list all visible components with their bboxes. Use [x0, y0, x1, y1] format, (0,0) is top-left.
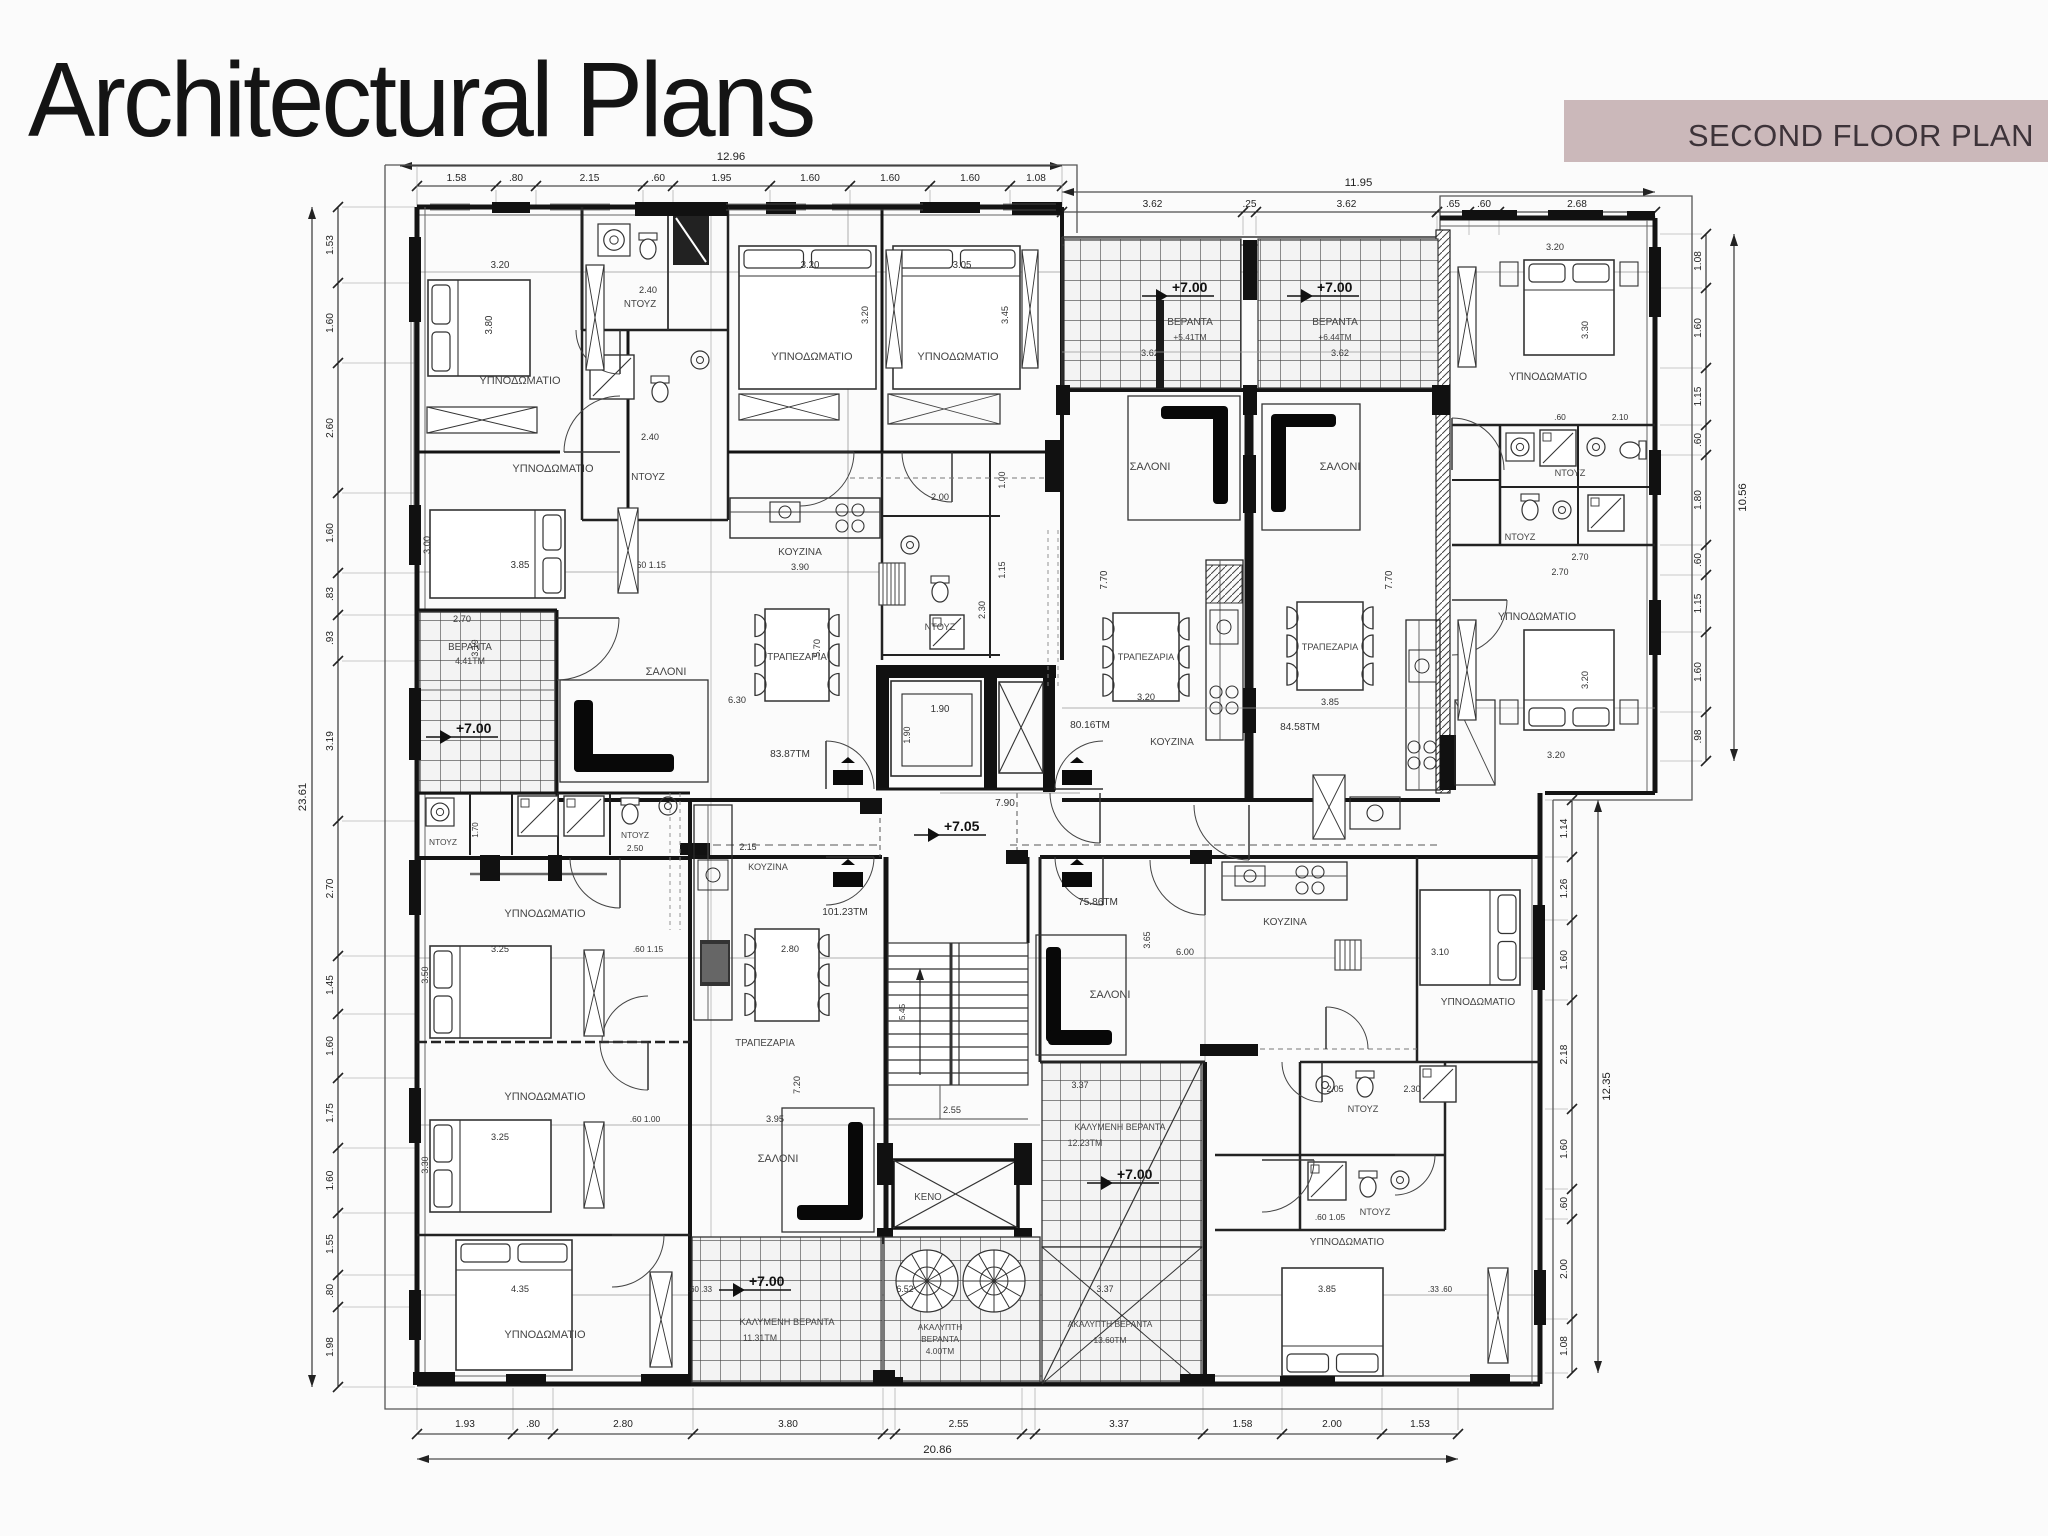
svg-text:ΚΟΥΖΙΝΑ: ΚΟΥΖΙΝΑ — [778, 547, 822, 558]
svg-text:ΤΡΑΠΕΖΑΡΙΑ: ΤΡΑΠΕΖΑΡΙΑ — [735, 1038, 795, 1049]
svg-text:20.86: 20.86 — [923, 1444, 952, 1456]
svg-text:2.15: 2.15 — [739, 842, 756, 852]
svg-text:1.00: 1.00 — [997, 471, 1007, 488]
svg-text:3.05: 3.05 — [953, 260, 972, 271]
svg-text:2.55: 2.55 — [943, 1105, 961, 1115]
svg-text:23.61: 23.61 — [297, 783, 309, 812]
svg-text:.80: .80 — [526, 1419, 540, 1430]
svg-text:.60 .33: .60 .33 — [688, 1285, 713, 1294]
svg-text:3.65: 3.65 — [1142, 931, 1152, 948]
svg-text:ΣΑΛΟΝΙ: ΣΑΛΟΝΙ — [646, 666, 687, 678]
svg-text:3.00: 3.00 — [422, 536, 432, 554]
svg-text:1.93: 1.93 — [455, 1419, 475, 1430]
svg-text:ΒΕΡΑΝΤΑ: ΒΕΡΑΝΤΑ — [921, 1334, 959, 1344]
svg-text:1.60: 1.60 — [1559, 950, 1570, 970]
svg-text:.98: .98 — [1693, 729, 1704, 743]
svg-text:7.70: 7.70 — [1099, 570, 1110, 589]
svg-text:1.15: 1.15 — [1693, 386, 1704, 406]
svg-text:1.15: 1.15 — [1693, 593, 1704, 613]
svg-text:1.15: 1.15 — [997, 561, 1007, 578]
svg-text:.60: .60 — [1693, 433, 1704, 447]
svg-text:3.45: 3.45 — [1000, 306, 1010, 324]
svg-text:ΤΡΑΠΕΖΑΡΙΑ: ΤΡΑΠΕΖΑΡΙΑ — [1302, 642, 1359, 652]
svg-text:.60: .60 — [651, 173, 665, 184]
svg-text:4.00TM: 4.00TM — [926, 1346, 954, 1356]
svg-text:3.25: 3.25 — [491, 1132, 509, 1142]
svg-text:1.60: 1.60 — [960, 173, 980, 184]
svg-text:ΝΤΟΥΖ: ΝΤΟΥΖ — [624, 299, 656, 310]
svg-text:.80: .80 — [325, 1284, 336, 1298]
svg-text:ΒΕΡΑΝΤΑ: ΒΕΡΑΝΤΑ — [1312, 317, 1358, 328]
svg-text:+7.00: +7.00 — [1172, 279, 1208, 295]
svg-text:1.70: 1.70 — [471, 822, 480, 838]
svg-text:ΝΤΟΥΖ: ΝΤΟΥΖ — [631, 472, 665, 483]
svg-text:1.45: 1.45 — [325, 975, 336, 995]
svg-text:2.50: 2.50 — [627, 843, 644, 853]
svg-text:ΥΠΝΟΔΩΜΑΤΙΟ: ΥΠΝΟΔΩΜΑΤΙΟ — [1509, 371, 1587, 383]
svg-text:ΝΤΟΥΖ: ΝΤΟΥΖ — [1555, 468, 1586, 478]
svg-text:2.70: 2.70 — [1551, 567, 1568, 577]
svg-text:.33 .60: .33 .60 — [1428, 1285, 1453, 1294]
svg-text:.60: .60 — [1559, 1197, 1570, 1211]
svg-text:ΒΕΡΑΝΤΑ: ΒΕΡΑΝΤΑ — [1167, 317, 1213, 328]
svg-text:3.90: 3.90 — [791, 562, 809, 572]
svg-text:10.56: 10.56 — [1737, 483, 1749, 512]
svg-text:3.19: 3.19 — [470, 639, 480, 656]
svg-text:ΑΚΑΛΥΠΤΗ ΒΕΡΑΝΤΑ: ΑΚΑΛΥΠΤΗ ΒΕΡΑΝΤΑ — [1068, 1319, 1153, 1329]
svg-text:+5.41TM: +5.41TM — [1173, 332, 1206, 342]
svg-text:3.95: 3.95 — [766, 1114, 784, 1124]
svg-text:1.60: 1.60 — [325, 313, 336, 333]
svg-text:.60: .60 — [1693, 553, 1704, 567]
svg-text:7.70: 7.70 — [1384, 570, 1395, 589]
svg-text:80.16TM: 80.16TM — [1070, 720, 1110, 731]
svg-text:.60 1.15: .60 1.15 — [633, 944, 664, 954]
svg-text:ΝΤΟΥΖ: ΝΤΟΥΖ — [1348, 1104, 1379, 1114]
svg-text:ΥΠΝΟΔΩΜΑΤΙΟ: ΥΠΝΟΔΩΜΑΤΙΟ — [1441, 997, 1516, 1008]
svg-text:ΥΠΝΟΔΩΜΑΤΙΟ: ΥΠΝΟΔΩΜΑΤΙΟ — [771, 351, 853, 363]
svg-text:ΥΠΝΟΔΩΜΑΤΙΟ: ΥΠΝΟΔΩΜΑΤΙΟ — [504, 908, 586, 920]
svg-text:3.20: 3.20 — [1547, 750, 1565, 760]
svg-text:1.60: 1.60 — [880, 173, 900, 184]
svg-text:.25: .25 — [1242, 199, 1256, 210]
svg-text:13.60TM: 13.60TM — [1093, 1335, 1126, 1345]
svg-text:.60: .60 — [1554, 412, 1566, 422]
svg-text:3.62: 3.62 — [1143, 199, 1163, 210]
svg-text:2.30: 2.30 — [1403, 1084, 1420, 1094]
svg-text:1.53: 1.53 — [1410, 1419, 1430, 1430]
svg-text:5.45: 5.45 — [897, 1004, 907, 1021]
svg-text:3.62: 3.62 — [1331, 348, 1349, 358]
svg-text:3.25: 3.25 — [491, 944, 509, 954]
svg-text:.83: .83 — [325, 587, 336, 601]
svg-text:ΝΤΟΥΖ: ΝΤΟΥΖ — [621, 830, 649, 840]
svg-text:+7.05: +7.05 — [944, 818, 980, 834]
svg-text:75.86TM: 75.86TM — [1078, 897, 1118, 908]
svg-text:1.60: 1.60 — [1693, 318, 1704, 338]
svg-text:3.37: 3.37 — [1071, 1080, 1088, 1090]
svg-text:+7.00: +7.00 — [1117, 1166, 1153, 1182]
svg-text:3.30: 3.30 — [1580, 321, 1590, 339]
svg-text:84.58TM: 84.58TM — [1280, 722, 1320, 733]
svg-text:6.00: 6.00 — [1176, 947, 1194, 957]
svg-text:83.87TM: 83.87TM — [770, 749, 810, 760]
svg-text:2.00: 2.00 — [1559, 1259, 1570, 1279]
svg-text:2.10: 2.10 — [1612, 412, 1629, 422]
svg-text:1.26: 1.26 — [1559, 878, 1570, 898]
svg-text:1.08: 1.08 — [1693, 251, 1704, 271]
svg-text:3.30: 3.30 — [420, 1156, 430, 1173]
svg-text:ΚΑΛΥΜΕΝΗ ΒΕΡΑΝΤΑ: ΚΑΛΥΜΕΝΗ ΒΕΡΑΝΤΑ — [1075, 1122, 1166, 1132]
svg-text:1.53: 1.53 — [325, 235, 336, 255]
svg-text:3.20: 3.20 — [1546, 242, 1564, 252]
svg-text:.60: .60 — [1477, 199, 1491, 210]
svg-text:2.40: 2.40 — [639, 285, 657, 295]
svg-text:.93: .93 — [325, 631, 336, 645]
svg-text:3.85: 3.85 — [1318, 1284, 1336, 1294]
svg-text:ΥΠΝΟΔΩΜΑΤΙΟ: ΥΠΝΟΔΩΜΑΤΙΟ — [1498, 611, 1576, 623]
svg-text:3.10: 3.10 — [1431, 947, 1449, 957]
svg-text:.65: .65 — [1446, 199, 1460, 210]
svg-text:1.90: 1.90 — [902, 726, 912, 743]
svg-text:6.30: 6.30 — [728, 695, 746, 705]
svg-text:2.18: 2.18 — [1559, 1044, 1570, 1064]
svg-text:3.80: 3.80 — [484, 315, 495, 334]
svg-text:1.80: 1.80 — [1693, 490, 1704, 510]
svg-text:4.35: 4.35 — [511, 1284, 529, 1294]
svg-text:7.20: 7.20 — [792, 1076, 802, 1094]
svg-text:1.55: 1.55 — [325, 1234, 336, 1254]
svg-text:1.60: 1.60 — [1559, 1139, 1570, 1159]
svg-text:1.98: 1.98 — [325, 1337, 336, 1357]
svg-text:1.58: 1.58 — [447, 173, 467, 184]
svg-text:1.58: 1.58 — [1233, 1419, 1253, 1430]
svg-text:1.60: 1.60 — [325, 1170, 336, 1190]
svg-text:ΝΤΟΥΖ: ΝΤΟΥΖ — [429, 837, 457, 847]
svg-text:ΣΑΛΟΝΙ: ΣΑΛΟΝΙ — [1090, 989, 1131, 1001]
svg-text:2.15: 2.15 — [580, 173, 600, 184]
svg-text:2.70: 2.70 — [1571, 552, 1588, 562]
svg-text:ΣΑΛΟΝΙ: ΣΑΛΟΝΙ — [1320, 461, 1361, 473]
svg-text:12.35: 12.35 — [1601, 1072, 1613, 1101]
svg-text:ΣΑΛΟΝΙ: ΣΑΛΟΝΙ — [758, 1153, 799, 1165]
svg-text:3.19: 3.19 — [325, 731, 336, 751]
svg-text:3.50: 3.50 — [420, 966, 430, 983]
svg-text:1.60: 1.60 — [325, 523, 336, 543]
svg-text:3.85: 3.85 — [1321, 697, 1339, 707]
svg-text:2.68: 2.68 — [1567, 199, 1587, 210]
svg-text:1.75: 1.75 — [325, 1103, 336, 1123]
svg-text:+7.00: +7.00 — [456, 720, 492, 736]
svg-text:1.14: 1.14 — [1559, 818, 1570, 838]
svg-text:2.70: 2.70 — [453, 614, 471, 624]
svg-text:3.20: 3.20 — [491, 260, 510, 271]
svg-text:3.20: 3.20 — [860, 306, 870, 324]
svg-text:2.05: 2.05 — [1326, 1084, 1343, 1094]
svg-text:1.60: 1.60 — [800, 173, 820, 184]
svg-text:1.08: 1.08 — [1026, 173, 1046, 184]
svg-text:ΥΠΝΟΔΩΜΑΤΙΟ: ΥΠΝΟΔΩΜΑΤΙΟ — [917, 351, 999, 363]
svg-text:ΤΡΑΠΕΖΑΡΙΑ: ΤΡΑΠΕΖΑΡΙΑ — [1118, 652, 1175, 662]
svg-text:12.96: 12.96 — [717, 151, 746, 163]
svg-text:3.80: 3.80 — [778, 1419, 798, 1430]
svg-text:ΚΟΥΖΙΝΑ: ΚΟΥΖΙΝΑ — [1263, 917, 1307, 928]
svg-text:+7.00: +7.00 — [1317, 279, 1353, 295]
svg-text:2.80: 2.80 — [613, 1419, 633, 1430]
svg-text:3.20: 3.20 — [1137, 692, 1155, 702]
svg-text:.80: .80 — [509, 173, 523, 184]
svg-text:2.55: 2.55 — [949, 1419, 969, 1430]
svg-text:101.23TM: 101.23TM — [822, 907, 867, 918]
svg-text:2.80: 2.80 — [781, 944, 799, 954]
svg-text:2.30: 2.30 — [977, 601, 987, 619]
svg-text:ΥΠΝΟΔΩΜΑΤΙΟ: ΥΠΝΟΔΩΜΑΤΙΟ — [479, 375, 561, 387]
svg-text:6.52: 6.52 — [896, 1284, 913, 1294]
svg-text:ΝΤΟΥΖ: ΝΤΟΥΖ — [925, 622, 956, 632]
svg-text:3.20: 3.20 — [801, 260, 820, 271]
svg-text:11.31TM: 11.31TM — [743, 1333, 777, 1343]
svg-text:1.90: 1.90 — [931, 704, 950, 715]
svg-text:3.62: 3.62 — [1337, 199, 1357, 210]
svg-text:ΥΠΝΟΔΩΜΑΤΙΟ: ΥΠΝΟΔΩΜΑΤΙΟ — [1310, 1237, 1385, 1248]
svg-text:.60 1.00: .60 1.00 — [630, 1114, 661, 1124]
svg-text:2.60: 2.60 — [325, 418, 336, 438]
svg-text:+6.44TM: +6.44TM — [1318, 332, 1351, 342]
svg-text:ΝΤΟΥΖ: ΝΤΟΥΖ — [1505, 532, 1536, 542]
svg-text:.60 1.05: .60 1.05 — [1315, 1212, 1346, 1222]
svg-text:3.37: 3.37 — [1109, 1419, 1129, 1430]
svg-text:ΚΟΥΖΙΝΑ: ΚΟΥΖΙΝΑ — [748, 862, 789, 872]
svg-text:12.23TM: 12.23TM — [1068, 1138, 1103, 1148]
svg-text:1.08: 1.08 — [1559, 1336, 1570, 1356]
svg-text:ΣΑΛΟΝΙ: ΣΑΛΟΝΙ — [1130, 461, 1171, 473]
svg-text:1.60: 1.60 — [1693, 662, 1704, 682]
svg-text:3.37: 3.37 — [1096, 1284, 1113, 1294]
svg-text:+7.00: +7.00 — [749, 1273, 785, 1289]
svg-text:2.70: 2.70 — [325, 878, 336, 898]
svg-text:2.00: 2.00 — [1322, 1419, 1342, 1430]
svg-text:ΚΟΥΖΙΝΑ: ΚΟΥΖΙΝΑ — [1150, 737, 1194, 748]
svg-text:ΑΚΑΛΥΠΤΗ: ΑΚΑΛΥΠΤΗ — [918, 1322, 963, 1332]
svg-text:11.95: 11.95 — [1345, 177, 1373, 189]
svg-text:ΥΠΝΟΔΩΜΑΤΙΟ: ΥΠΝΟΔΩΜΑΤΙΟ — [504, 1091, 586, 1103]
svg-text:ΝΤΟΥΖ: ΝΤΟΥΖ — [1360, 1207, 1391, 1217]
svg-text:1.95: 1.95 — [712, 173, 732, 184]
svg-text:3.85: 3.85 — [511, 560, 530, 571]
svg-text:ΥΠΝΟΔΩΜΑΤΙΟ: ΥΠΝΟΔΩΜΑΤΙΟ — [504, 1329, 586, 1341]
svg-text:.60 1.15: .60 1.15 — [634, 560, 666, 570]
svg-text:1.60: 1.60 — [325, 1036, 336, 1056]
svg-text:KENO: KENO — [914, 1192, 942, 1203]
svg-text:3.20: 3.20 — [1580, 671, 1590, 689]
svg-text:ΚΑΛΥΜΕΝΗ ΒΕΡΑΝΤΑ: ΚΑΛΥΜΕΝΗ ΒΕΡΑΝΤΑ — [740, 1317, 836, 1327]
svg-text:7.90: 7.90 — [995, 798, 1015, 809]
svg-text:5.70: 5.70 — [812, 639, 822, 657]
svg-text:2.40: 2.40 — [641, 432, 659, 442]
